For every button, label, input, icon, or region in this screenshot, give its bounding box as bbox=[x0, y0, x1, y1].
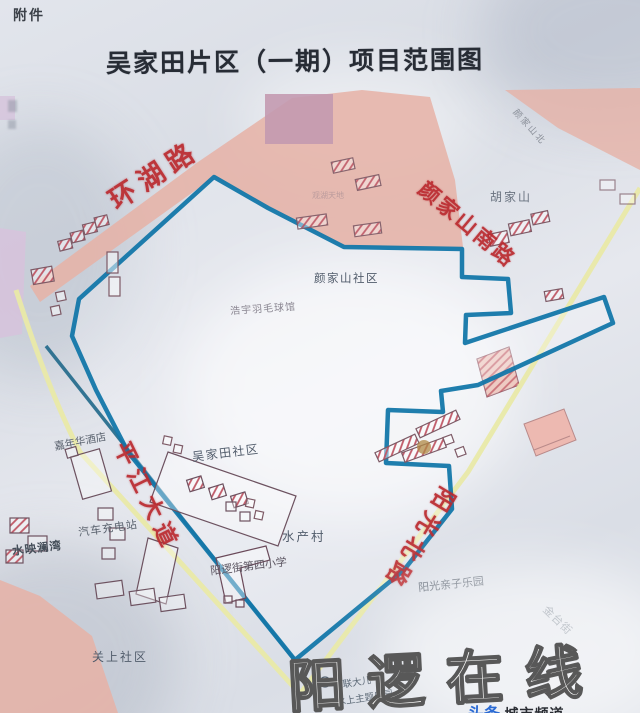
place-label-hujiashan: 胡家山 bbox=[490, 188, 532, 205]
faint-mark bbox=[8, 100, 17, 112]
building bbox=[31, 266, 54, 284]
map-photo: 附件 吴家田片区（一期）项目范围图 环湖路 颜家山南路 平江大道 阳光北路 颜家… bbox=[0, 0, 640, 713]
east-pink-parcel bbox=[524, 409, 576, 456]
place-label-guanshang-community: 关上社区 bbox=[92, 648, 148, 665]
southwest-salmon-wedge bbox=[0, 580, 118, 713]
faint-mark bbox=[8, 120, 16, 129]
place-label-yanjiashan-community: 颜家山社区 bbox=[314, 270, 379, 286]
building bbox=[600, 180, 615, 190]
attachment-label: 附件 bbox=[13, 5, 45, 25]
place-label-guanhu-tiandi: 观湖天地 bbox=[312, 190, 344, 201]
left-purple-strip bbox=[0, 228, 26, 338]
watermark-badge-dark-text: 城市频道 bbox=[504, 706, 564, 713]
page-title: 吴家田片区（一期）项目范围图 bbox=[70, 40, 520, 81]
building bbox=[107, 252, 118, 273]
building-pair bbox=[48, 291, 69, 316]
building bbox=[109, 277, 120, 296]
mauve-block bbox=[265, 94, 333, 144]
building bbox=[620, 194, 635, 204]
building bbox=[544, 289, 563, 302]
watermark-badge-blue-text: 头条 bbox=[468, 706, 500, 713]
watermark-source-badge: 头条 城市频道 bbox=[468, 700, 564, 713]
map-drawing bbox=[0, 0, 640, 713]
place-label-shuichan-village: 水产村 bbox=[282, 526, 326, 545]
